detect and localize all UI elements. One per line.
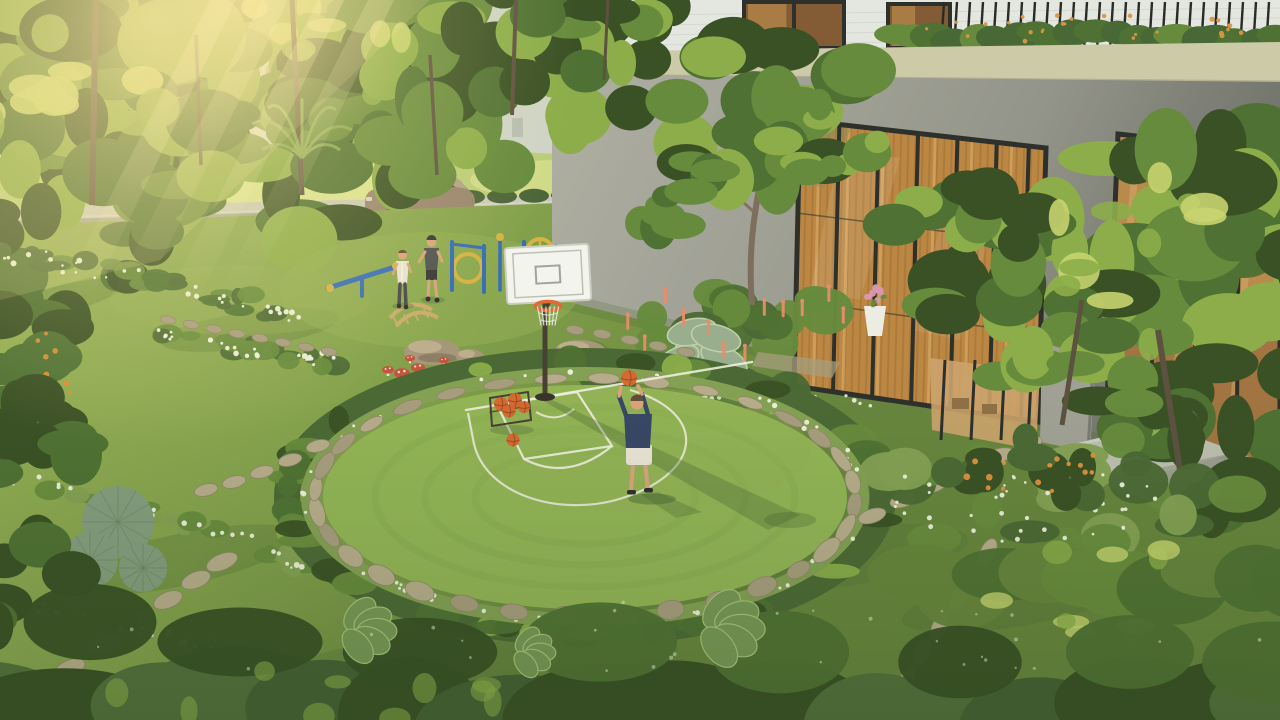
vignette: [0, 0, 1280, 720]
light-overlays: [0, 0, 1280, 720]
garden-courtyard-scene: [0, 0, 1280, 720]
architectural-render: [0, 0, 1280, 720]
